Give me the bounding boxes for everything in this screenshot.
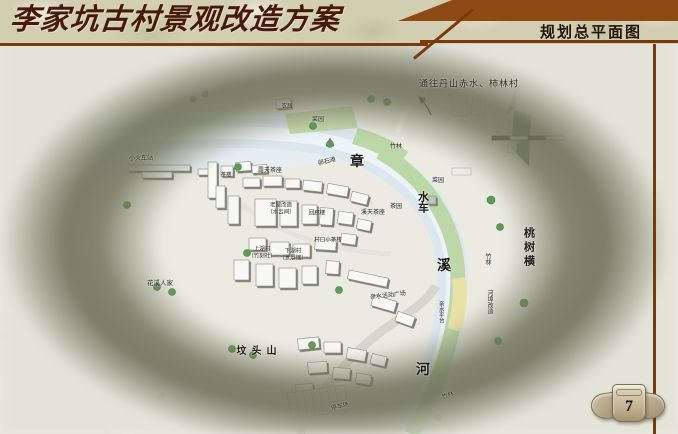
title-underline: [0, 43, 428, 46]
vertical-rule: [653, 18, 656, 434]
page-number: 7: [613, 398, 645, 416]
section-title-underline: [420, 40, 678, 43]
emblem-tablet: 7: [612, 384, 646, 422]
page-number-emblem: 7: [591, 383, 665, 423]
slide: 通往丹山赤水、柿林村小火车站茶楼露天茶座卵石滩农居菜园竹林章菜园水车茶园溪天茶座…: [0, 0, 678, 434]
section-title: 规划总平面图: [540, 21, 642, 42]
river-dock-strip: [454, 278, 460, 330]
scale-bar: [492, 136, 564, 140]
page-title: 李家坑古村景观改造方案: [8, 5, 341, 37]
site-plan-graphic: [0, 0, 678, 434]
